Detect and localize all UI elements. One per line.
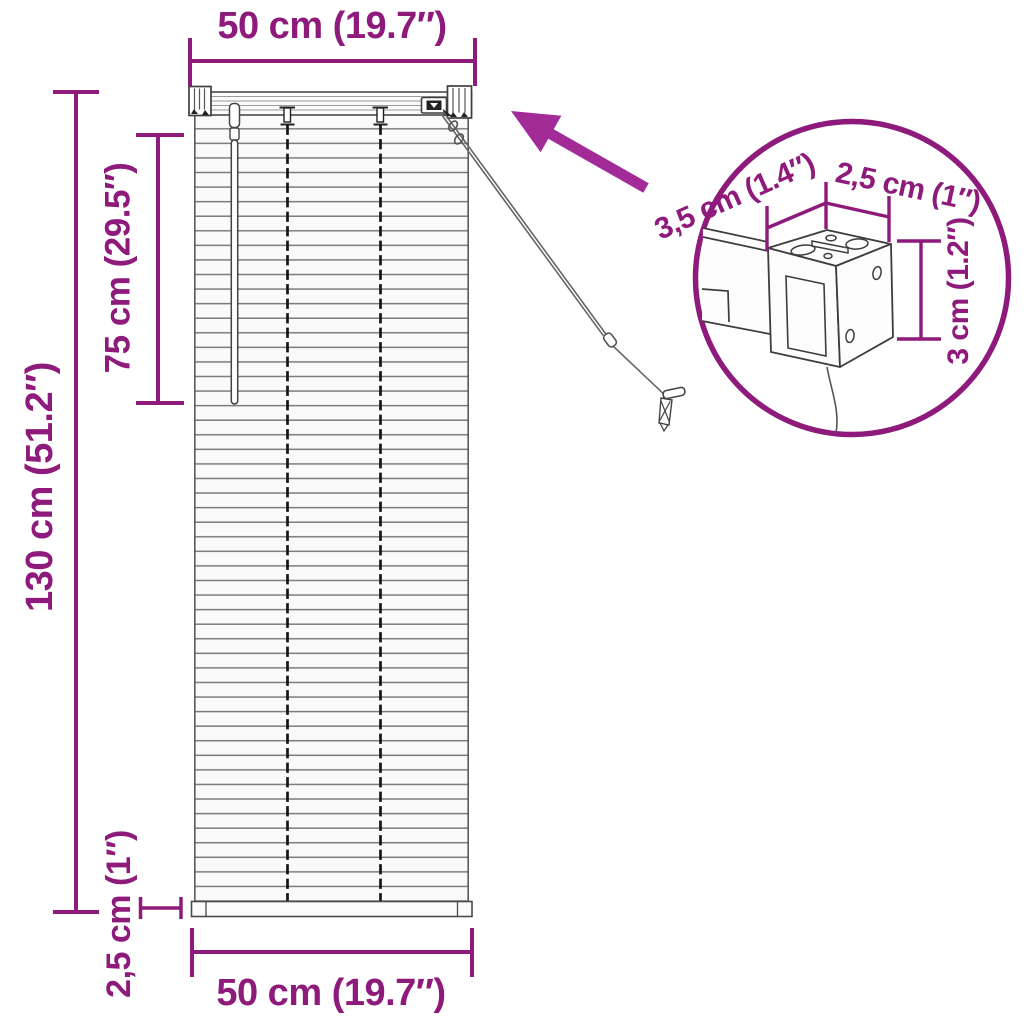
label-height-total: 130 cm (51.2″) — [21, 362, 59, 612]
callout-arrow — [511, 111, 649, 193]
dim-rail-thickness — [141, 897, 182, 919]
label-width-bottom: 50 cm (19.7″) — [216, 974, 445, 1012]
dim-width-bottom — [192, 928, 472, 977]
bottom-rail — [192, 902, 473, 917]
diagram-lineart — [0, 0, 1024, 1024]
product-dimension-diagram: 50 cm (19.7″) 130 cm (51.2″) 75 cm (29.5… — [0, 0, 1024, 1024]
label-height-partial: 75 cm (29.5″) — [101, 163, 136, 374]
label-detail-height: 3 cm (1.2″) — [944, 217, 974, 364]
cord-tassel — [659, 387, 686, 431]
tilt-wand — [230, 104, 240, 405]
label-width-top: 50 cm (19.7″) — [217, 7, 446, 45]
venetian-blind — [189, 86, 686, 917]
dim-height-partial — [136, 135, 184, 403]
mounting-bracket-right — [448, 86, 472, 118]
label-rail-thickness: 2,5 cm (1″) — [102, 830, 136, 998]
mounting-bracket-left — [189, 87, 211, 116]
pull-cord — [442, 113, 668, 398]
